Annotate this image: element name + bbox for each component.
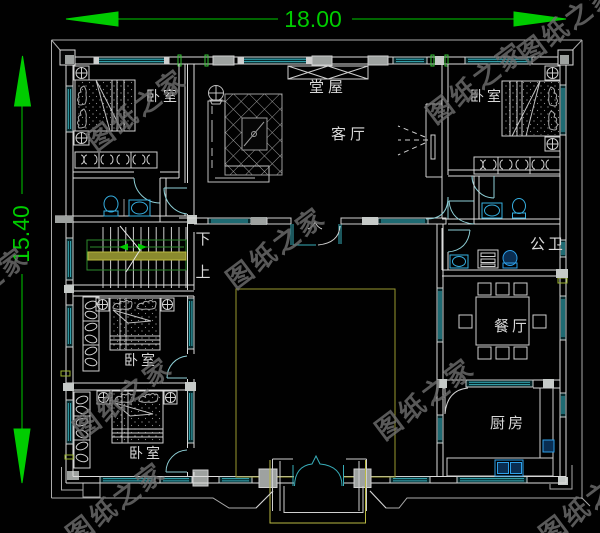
svg-text:客厅: 客厅 bbox=[331, 126, 369, 143]
svg-text:餐厅: 餐厅 bbox=[494, 318, 530, 335]
svg-text:卧室: 卧室 bbox=[129, 445, 163, 461]
svg-text:上: 上 bbox=[195, 264, 210, 281]
svg-text:堂屋: 堂屋 bbox=[309, 79, 347, 96]
svg-text:下: 下 bbox=[195, 231, 210, 248]
svg-text:公卫: 公卫 bbox=[530, 236, 566, 253]
svg-text:18.00: 18.00 bbox=[284, 6, 342, 32]
svg-text:厨房: 厨房 bbox=[490, 415, 526, 432]
